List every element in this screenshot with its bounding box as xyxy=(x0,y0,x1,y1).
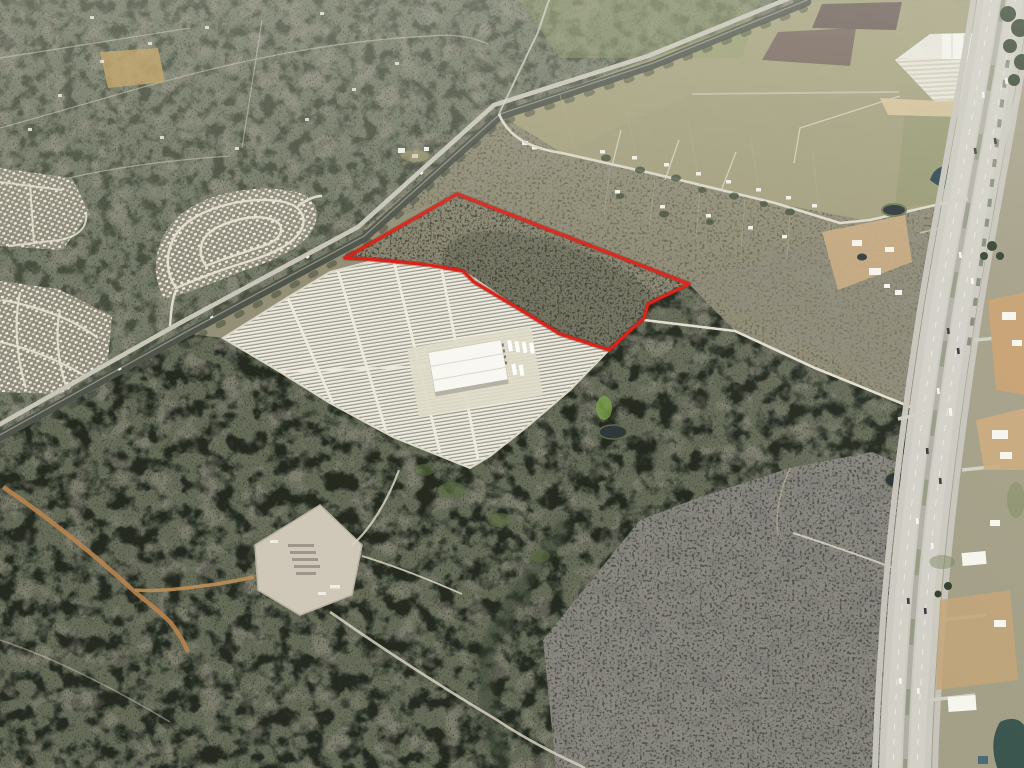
light-sheen xyxy=(0,0,1024,768)
aerial-photo-canvas xyxy=(0,0,1024,768)
aerial-photo xyxy=(0,0,1024,768)
